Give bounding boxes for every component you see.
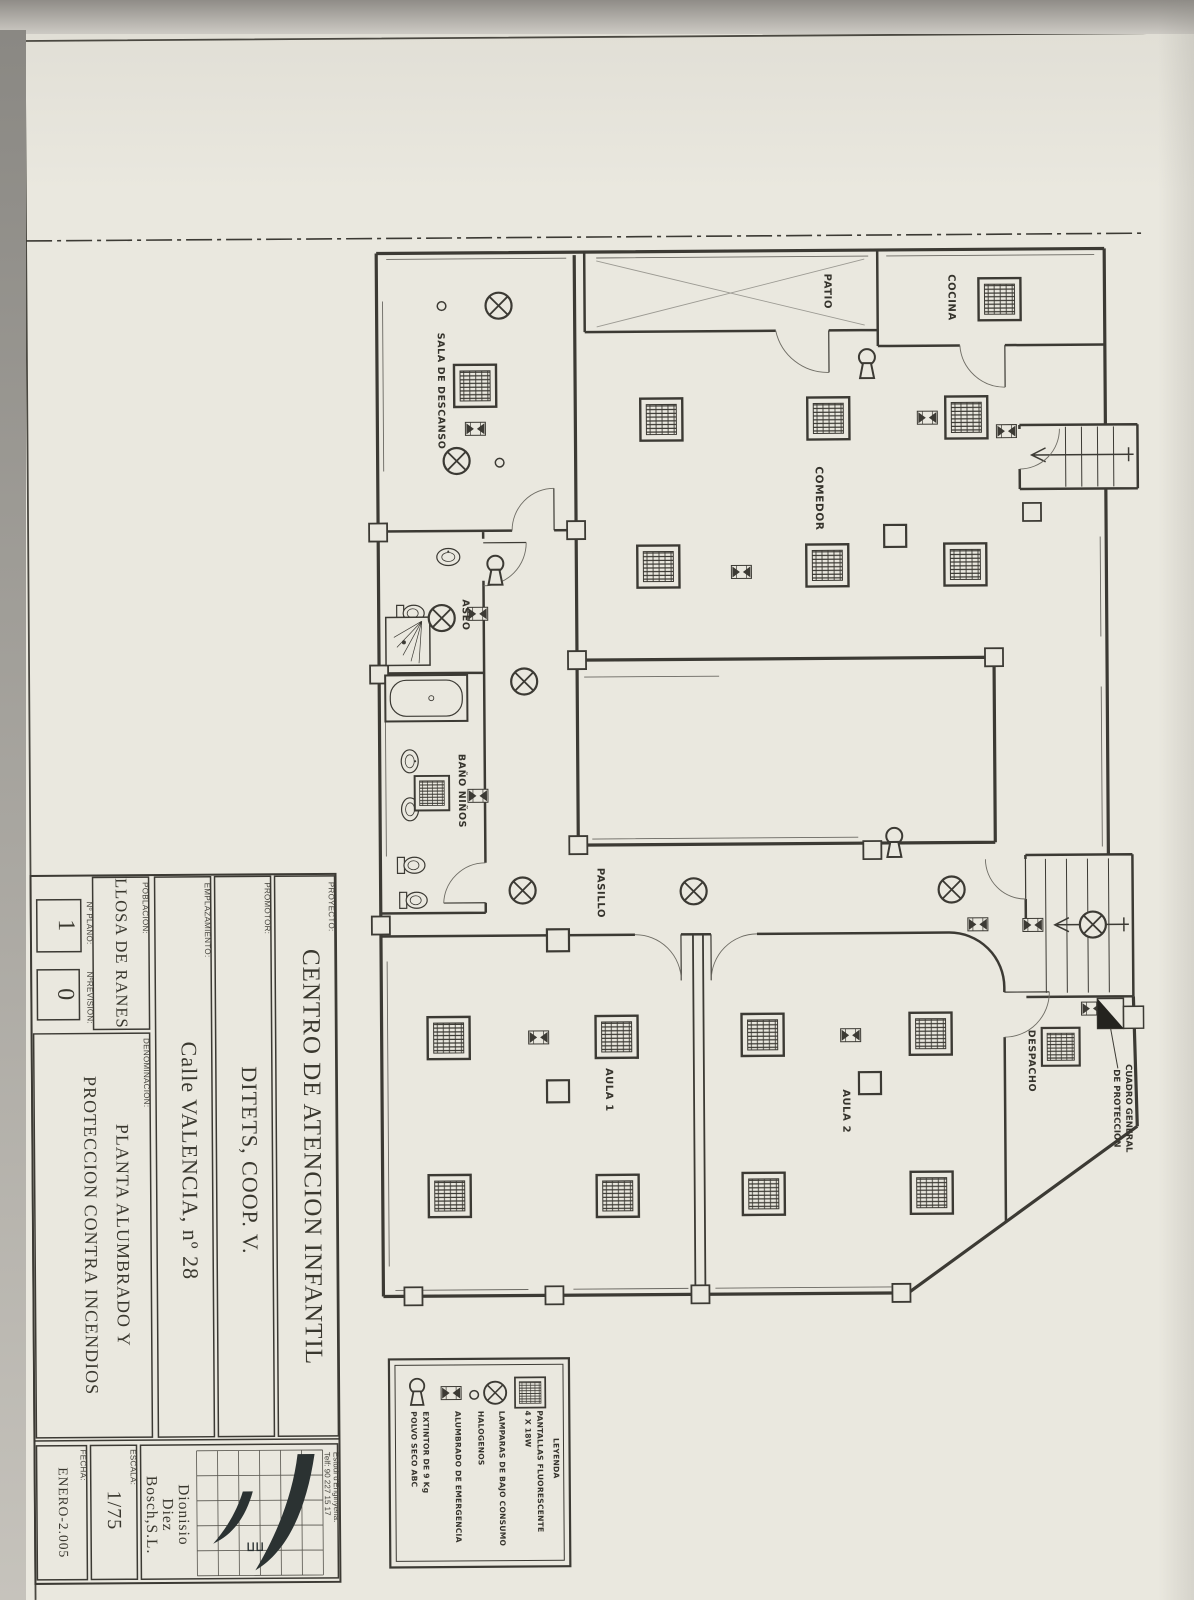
fluorescent-panel-icon bbox=[741, 1014, 783, 1056]
extinguisher-icon bbox=[487, 556, 503, 585]
floorplan-drawing: PATIO COCINA SALA DE DESCANSO COMEDOR AS… bbox=[0, 0, 1194, 1600]
legend-item-lamp-line1: LAMPARAS DE BAJO CONSUMO bbox=[497, 1411, 507, 1547]
room-label-patio: PATIO bbox=[821, 274, 832, 309]
poblacion-value: LLOSA DE RANES bbox=[112, 878, 132, 1029]
denominacion-line2: PROTECCION CONTRA INCENDIOS bbox=[80, 1076, 102, 1395]
fluorescent-panel-icon bbox=[515, 1377, 545, 1407]
photographed-floorplan-sheet: PATIO COCINA SALA DE DESCANSO COMEDOR AS… bbox=[0, 0, 1194, 1600]
legend-item-panel-line1: PANTALLAS FLUORESCENTE bbox=[535, 1410, 545, 1532]
fluorescent-panel-icon bbox=[428, 1017, 470, 1059]
fluorescent-panel-icon bbox=[415, 776, 450, 811]
plano-label: Nº PLANO: bbox=[85, 902, 94, 945]
emergency-light-icon bbox=[529, 1031, 549, 1044]
legend: LEYENDA PANTALLAS FLUORESCENTE 4 X 18W L… bbox=[389, 1358, 570, 1567]
promotor-value: DITETS, COOP. V. bbox=[237, 1066, 263, 1254]
column-marker bbox=[547, 929, 569, 951]
room-label-pasillo: PASILLO bbox=[594, 868, 605, 918]
studio-line1: Estudi d'Enginyeria. bbox=[332, 1452, 341, 1523]
lamp-icon bbox=[510, 877, 536, 903]
photo-right-edge bbox=[1158, 0, 1194, 1600]
proyecto-label: PROYECTO: bbox=[327, 882, 336, 932]
revision-label: NºREVISION: bbox=[85, 972, 94, 1025]
emergency-light-icon bbox=[468, 789, 488, 802]
denominacion-line1: PLANTA ALUMBRADO Y bbox=[112, 1124, 134, 1347]
legend-item-panel-line2: 4 X 18W bbox=[523, 1410, 532, 1447]
room-label-aula1: AULA 1 bbox=[603, 1068, 614, 1112]
shower-icon bbox=[386, 617, 430, 665]
denominacion-label: DENOMINACION: bbox=[142, 1038, 151, 1107]
lamp-icon bbox=[429, 605, 455, 631]
lamp-icon bbox=[939, 876, 965, 902]
legend-item-extinguisher-line1: EXTINTOR DE 9 Kg bbox=[421, 1411, 431, 1493]
firm-name-line2: Diez bbox=[159, 1498, 176, 1531]
escala-label: ESCALA: bbox=[129, 1449, 138, 1485]
promotor-label: PROMOTOR: bbox=[263, 882, 272, 934]
lamp-icon bbox=[511, 668, 537, 694]
emergency-light-icon bbox=[465, 422, 485, 435]
photo-top-edge bbox=[0, 0, 1194, 34]
plano-value: 1 bbox=[53, 919, 79, 932]
firm-name-line1: Dionisio bbox=[175, 1484, 192, 1546]
room-label-sala: SALA DE DESCANSO bbox=[435, 333, 447, 450]
photo-left-edge bbox=[0, 30, 26, 1600]
fluorescent-panel-icon bbox=[597, 1175, 639, 1217]
cuadro-label-line2: DE PROTECCION bbox=[1111, 1069, 1122, 1147]
room-label-cocina: COCINA bbox=[945, 274, 956, 321]
fluorescent-panel-icon bbox=[911, 1172, 953, 1214]
emplazamiento-value: Calle VALENCIA, nº 28 bbox=[177, 1042, 204, 1281]
emergency-light-icon bbox=[441, 1386, 461, 1399]
legend-item-halogen-line1: HALOGENOS bbox=[476, 1411, 485, 1466]
fluorescent-panel-icon bbox=[806, 544, 848, 586]
lamp-icon bbox=[484, 1382, 506, 1404]
fluorescent-panel-icon bbox=[596, 1016, 638, 1058]
fluorescent-panel-icon bbox=[640, 398, 682, 440]
fecha-value: ENERO-2.005 bbox=[56, 1467, 72, 1558]
fecha-label: FECHA: bbox=[79, 1450, 88, 1481]
studio-line2: Telf: 90 227 15 17 bbox=[323, 1452, 332, 1516]
cuadro-label-line1: CUADRO GENERAL bbox=[1123, 1064, 1134, 1153]
column-marker bbox=[859, 1072, 881, 1094]
poblacion-label: POBLACION: bbox=[141, 882, 150, 934]
proyecto-value: CENTRO DE ATENCION INFANTIL bbox=[297, 949, 327, 1365]
emergency-light-icon bbox=[917, 411, 937, 424]
fluorescent-panel-icon bbox=[637, 545, 679, 587]
room-label-aseo: ASEO bbox=[460, 599, 471, 630]
legend-item-extinguisher-line2: POLVO SECO ABC bbox=[409, 1411, 419, 1487]
emergency-light-icon bbox=[968, 918, 988, 931]
fluorescent-panel-icon bbox=[807, 397, 849, 439]
emergency-light-icon bbox=[841, 1029, 861, 1042]
legend-item-emergency-line1: ALUMBRADO DE EMERGENCIA bbox=[453, 1411, 463, 1543]
toilet-icon bbox=[397, 857, 425, 873]
column-marker bbox=[884, 525, 906, 547]
lamp-icon bbox=[1080, 911, 1106, 937]
emergency-light-icon bbox=[996, 425, 1016, 438]
fluorescent-panel-icon bbox=[909, 1013, 951, 1055]
column-marker bbox=[547, 1080, 569, 1102]
toilet-icon bbox=[400, 892, 428, 908]
fluorescent-panel-icon bbox=[429, 1175, 471, 1217]
firm-name-line3: Bosch,S.L. bbox=[143, 1476, 161, 1555]
sink-icon bbox=[401, 750, 418, 773]
fluorescent-panel-icon bbox=[1042, 1028, 1080, 1066]
legend-title: LEYENDA bbox=[551, 1438, 560, 1479]
lamp-icon bbox=[444, 448, 470, 474]
fluorescent-panel-icon bbox=[454, 365, 496, 407]
emergency-light-icon bbox=[731, 565, 751, 578]
room-label-despacho: DESPACHO bbox=[1026, 1030, 1037, 1093]
fluorescent-panel-icon bbox=[945, 396, 987, 438]
lamp-icon bbox=[485, 293, 511, 319]
fluorescent-panel-icon bbox=[944, 543, 986, 585]
room-label-comedor: COMEDOR bbox=[813, 466, 825, 530]
sink-icon bbox=[437, 548, 460, 565]
room-label-bano: BAÑO NIÑOS bbox=[456, 754, 468, 828]
extinguisher-icon bbox=[859, 349, 875, 378]
room-label-aula2: AULA 2 bbox=[840, 1089, 851, 1133]
bathtub-icon bbox=[385, 675, 467, 722]
lamp-icon bbox=[681, 878, 707, 904]
escala-value: 1/75 bbox=[103, 1491, 125, 1531]
emplazamiento-label: EMPLAZAMIENTO: bbox=[203, 883, 213, 958]
fluorescent-panel-icon bbox=[743, 1173, 785, 1215]
fluorescent-panel-icon bbox=[978, 278, 1020, 320]
revision-value: 0 bbox=[52, 988, 78, 1001]
emergency-light-icon bbox=[1023, 918, 1043, 931]
extinguisher-icon bbox=[410, 1379, 425, 1405]
title-block: PROYECTO: CENTRO DE ATENCION INFANTIL PR… bbox=[31, 874, 342, 1584]
extinguisher-icon bbox=[886, 828, 902, 857]
